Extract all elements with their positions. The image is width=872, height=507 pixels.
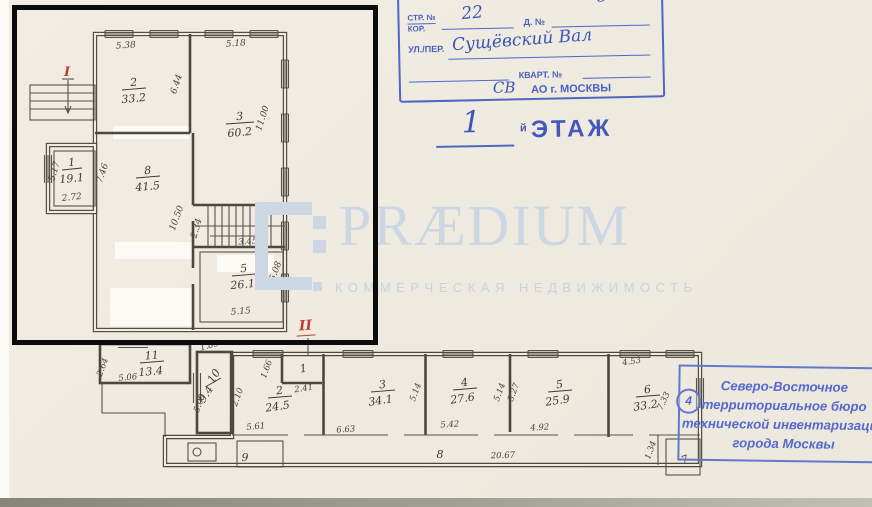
room-number: 4 (459, 376, 469, 390)
str-value: 22 (461, 2, 484, 24)
room-number: 10 (205, 367, 223, 386)
address-stamp: СТР. № КОР. 22 Д. № 5 УЛ./ПЕР. Сущёвский… (397, 0, 665, 103)
scanned-page: I 2 33.2 3 60.2 1 19.1 8 41.5 4 5 26.1 5… (0, 0, 872, 507)
room-area: 33.2 (632, 397, 658, 413)
watermark-brand: PRÆDIUM (339, 192, 630, 259)
scan-edge-left (0, 0, 9, 507)
house-label: Д. № (523, 17, 545, 27)
blank-line (409, 99, 489, 103)
dim-label: 4.53 (621, 356, 642, 369)
floor-word: ЭТАЖ (531, 115, 613, 144)
room-area: 24.5 (263, 398, 290, 414)
dim-label: 1.66 (259, 358, 275, 380)
dim-label: 2.41 (293, 383, 314, 396)
room-number: 8 (437, 448, 444, 461)
street-label: УЛ./ПЕР. (408, 44, 444, 55)
kor-label: КОР. (408, 25, 436, 34)
okrug-value: СВ (493, 78, 516, 96)
room-area: 34.1 (367, 392, 393, 408)
floor-plan-lower: 11 13.4 10 9.4 1 2 24.5 3 34.1 4 27.6 5 … (88, 338, 713, 490)
room-number: 11 (144, 348, 159, 362)
blank-line (448, 54, 650, 60)
room-area: 13.4 (138, 364, 164, 379)
room-number: 6 (643, 383, 652, 397)
kvartal-label: КВАРТ. № (519, 69, 563, 80)
house-value: 5 (597, 0, 608, 6)
dim-label: 1.34 (643, 440, 659, 461)
str-kor-label: СТР. № КОР. (407, 14, 435, 34)
floor-suffix: й (520, 122, 527, 134)
dim-label: 5.14 (408, 382, 424, 403)
dim-label: 2.64 (95, 357, 111, 379)
dim-label: 5.27 (506, 381, 522, 403)
room-number: 9 (242, 451, 249, 464)
dim-label: 5.61 (246, 421, 266, 433)
room-area: 25.9 (543, 392, 570, 408)
bti-stamp: 4 Северо-Восточное территориальное бюро … (677, 365, 872, 464)
dim-label: 4.92 (529, 422, 550, 433)
dim-label: 5.06 (118, 372, 138, 384)
dim-label: 7.33 (656, 390, 673, 411)
blank-line (442, 26, 514, 30)
dim-label: 20.67 (490, 451, 516, 462)
street-value: Сущёвский Вал (451, 25, 592, 55)
blank-line (583, 75, 651, 78)
room-area: 27.6 (448, 390, 475, 406)
room-number: 2 (274, 384, 284, 398)
floor-number: 1 (462, 105, 482, 140)
dim-label: 6.63 (336, 424, 356, 435)
selection-rectangle (12, 5, 378, 345)
watermark-tagline: КОММЕРЧЕСКАЯ НЕДВИЖИМОСТЬ (335, 280, 698, 295)
outer-walls (165, 354, 700, 465)
room-number: 1 (299, 362, 308, 376)
bti-stamp-line: города Москвы (679, 433, 872, 455)
room-number: 3 (378, 378, 387, 392)
floor-title: 1 й ЭТАЖ (427, 100, 658, 164)
bti-stamp-line: технической инвентаризации (680, 414, 872, 436)
room-number: 5 (555, 378, 564, 392)
okrug-label: АО г. МОСКВЫ (531, 82, 611, 96)
scan-edge-shadow (0, 498, 872, 507)
floor-number-underline (436, 145, 514, 148)
fixture-icon (188, 443, 216, 461)
dim-label: 5.42 (440, 419, 460, 430)
str-label: СТР. № (407, 14, 435, 25)
side-rooms (100, 344, 700, 475)
